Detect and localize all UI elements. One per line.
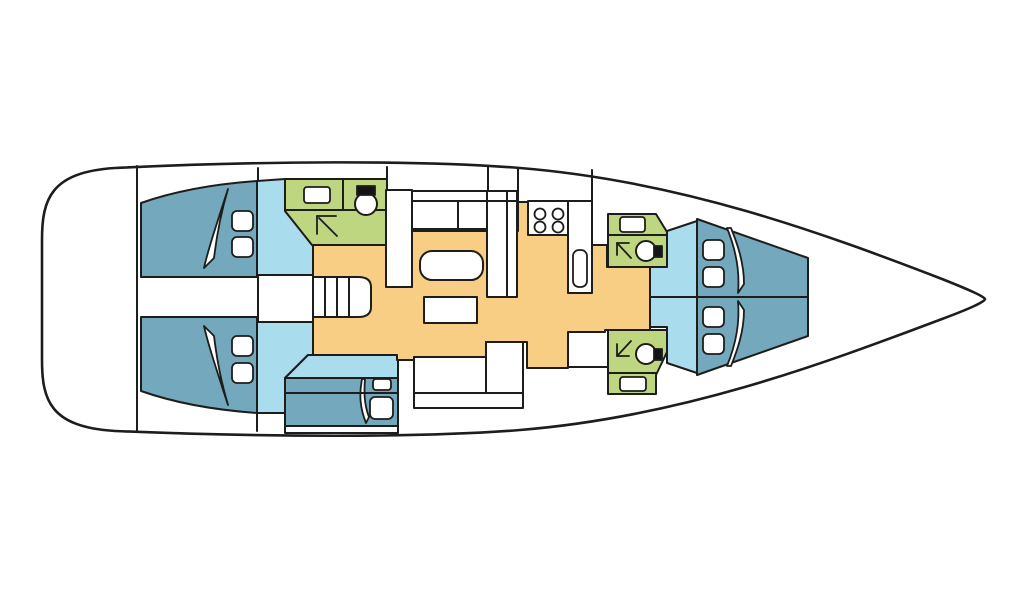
burner [535,209,546,220]
aft-corridor [258,275,313,322]
burner [553,222,564,233]
midship-berth-step [285,426,398,433]
burner [535,222,546,233]
saloon-settee-left [386,190,412,287]
pillow [703,334,724,354]
washbasin [620,377,646,391]
washbasin [304,187,330,203]
floor-plan-canvas [0,0,1024,600]
toilet-lid [654,246,662,257]
pillow [703,307,724,327]
saloon-settee-right [487,191,517,297]
companionway-stairs [313,277,371,317]
toilet [636,241,656,261]
toilet-lid [357,186,375,195]
yacht-floor-plan [0,0,1024,600]
pillow [703,240,724,260]
washbasin [620,217,645,232]
pillow [373,379,391,390]
toilet [355,193,377,215]
pillow [370,397,393,419]
saloon-table [420,251,483,280]
pillow [232,336,253,356]
toilet-lid [654,349,662,360]
pillow [232,211,253,231]
pillow [703,267,724,287]
burner [553,209,564,220]
pillow [232,363,253,383]
pillow [232,237,253,257]
saloon-settee-top [412,191,488,229]
galley-sink [573,250,587,287]
coffee-table [424,297,477,323]
toilet [636,344,656,364]
